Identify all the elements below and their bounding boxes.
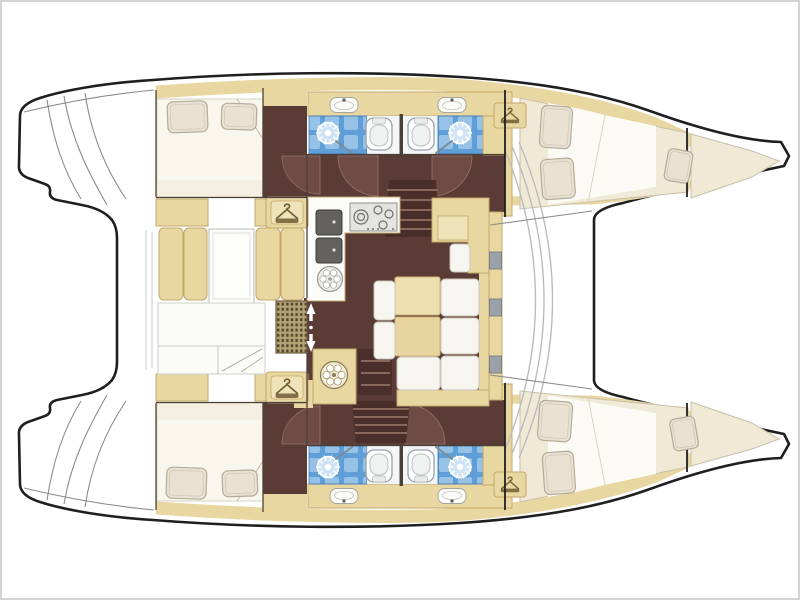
helm-bench — [158, 303, 265, 346]
catamaran-floor-plan — [0, 0, 800, 600]
wardrobe-box — [494, 103, 526, 128]
dining-table — [395, 277, 440, 315]
seat-cushion — [441, 318, 479, 354]
pillow — [166, 467, 207, 499]
floor-plan-image — [0, 0, 800, 600]
dining-table — [395, 317, 440, 356]
aft-cabin-starboard — [157, 403, 263, 501]
toilet-icon — [408, 450, 434, 482]
locker — [263, 492, 307, 512]
nav-seat-cushion — [450, 244, 470, 272]
washbasin-icon — [438, 98, 466, 113]
washing-machine-icon — [321, 362, 348, 389]
toilet-icon — [366, 118, 392, 150]
galley-sink — [316, 238, 342, 263]
pillow — [221, 103, 257, 130]
pillow — [537, 400, 573, 442]
window — [490, 299, 502, 316]
bench-cushion — [159, 228, 183, 300]
seat-cushion — [397, 357, 440, 390]
galley-sink — [316, 210, 342, 235]
bench-cushion — [256, 228, 280, 300]
pillow — [669, 416, 699, 452]
pillow — [222, 470, 258, 497]
pillow — [663, 148, 693, 184]
bench-cushion — [184, 228, 207, 300]
window — [490, 252, 502, 269]
trampoline — [600, 228, 760, 372]
wardrobe-starboard-forward — [494, 472, 526, 497]
aft-bench — [156, 374, 208, 401]
locker — [263, 88, 307, 108]
wardrobe-port-forward — [494, 103, 526, 128]
partition-wall — [400, 114, 404, 155]
washbasin-icon — [438, 489, 466, 504]
seat-cushion — [374, 281, 395, 320]
toilet-icon — [408, 118, 434, 150]
wardrobe-port-aft — [266, 197, 308, 228]
settee-back — [397, 390, 489, 406]
head-port — [308, 92, 505, 155]
window — [490, 356, 502, 373]
aft-bench — [156, 199, 208, 226]
washbasin-icon — [330, 98, 358, 113]
seat-cushion — [441, 279, 479, 316]
bed-foot — [158, 180, 263, 197]
aft-cabin-port — [157, 99, 263, 197]
toilet-icon — [366, 450, 392, 482]
pillow — [539, 105, 573, 149]
deck-grate — [276, 301, 307, 353]
hull-steps-starboard — [352, 401, 410, 443]
settee-back — [479, 272, 489, 392]
round-appliance-icon — [318, 267, 343, 292]
cockpit-table — [209, 229, 254, 303]
nav-desk-top — [438, 216, 468, 240]
pillow — [542, 451, 576, 495]
pillow — [540, 158, 576, 200]
wardrobe-starboard-aft — [266, 372, 308, 403]
seat-cushion — [441, 356, 479, 390]
bed-foot — [158, 403, 263, 420]
seat-cushion — [374, 322, 395, 359]
wardrobe-box — [494, 472, 526, 497]
aft-seat — [158, 346, 265, 374]
head-starboard — [308, 445, 505, 508]
partition-wall — [400, 445, 404, 486]
bench-cushion — [281, 228, 304, 300]
washbasin-icon — [330, 489, 358, 504]
pillow — [167, 101, 208, 133]
